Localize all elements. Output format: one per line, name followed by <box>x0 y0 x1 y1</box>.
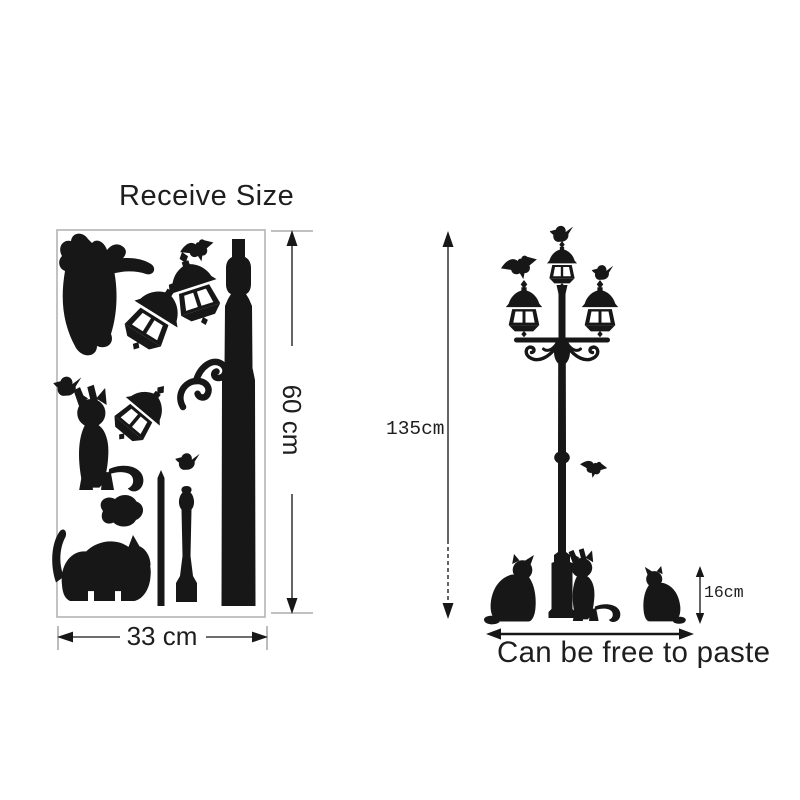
lamp-lantern-left <box>506 280 542 337</box>
sheet-piece-cat-head <box>101 495 143 527</box>
bird-flying-middle <box>578 458 608 480</box>
arrow-right-icon <box>252 632 268 643</box>
arrow-down-icon <box>696 613 704 624</box>
lamp-lantern-right <box>582 280 618 337</box>
cat-height-label: 16cm <box>704 583 744 602</box>
arrow-left-icon <box>57 632 73 643</box>
product-diagram: Receive Size 60 cm 33 cm 135cm 16cm Can … <box>0 0 800 800</box>
sheet-piece-baluster-post <box>176 486 197 602</box>
bird-on-center-lantern <box>550 226 573 242</box>
sticker-sheet <box>52 230 265 617</box>
arrow-down-icon <box>287 598 298 614</box>
arrow-down-icon <box>443 603 454 619</box>
lamp-cross-arm <box>514 338 610 343</box>
sheet-piece-walking-cat <box>52 530 151 601</box>
sheet-width-label: 33 cm <box>122 621 202 652</box>
sheet-piece-thin-rod <box>158 470 165 606</box>
artwork-canvas <box>0 0 800 800</box>
paste-caption: Can be free to paste <box>497 636 770 670</box>
bird-flying-left <box>500 254 540 283</box>
cat-sitting-right <box>643 566 685 624</box>
receive-size-title: Receive Size <box>119 180 294 213</box>
lamp-post-figure <box>484 226 686 624</box>
bird-on-right-lantern <box>592 265 614 280</box>
lamp-height-label: 135cm <box>386 418 445 440</box>
sheet-height-label: 60 cm <box>278 360 306 480</box>
arrow-up-icon <box>696 566 704 577</box>
arrow-up-icon <box>287 230 298 246</box>
sheet-piece-scroll-ornament <box>180 362 225 407</box>
cat-sitting-left <box>484 554 536 624</box>
dimension-16cm <box>696 566 704 624</box>
sheet-piece-perched-bird-2 <box>175 453 199 470</box>
arrow-up-icon <box>443 231 454 247</box>
cat-standing-at-pole <box>569 548 621 622</box>
lamp-pole <box>549 294 576 618</box>
sheet-piece-pole-segment <box>222 239 256 606</box>
lamp-lantern-center <box>547 241 577 288</box>
sheet-piece-lantern-3 <box>102 372 181 454</box>
